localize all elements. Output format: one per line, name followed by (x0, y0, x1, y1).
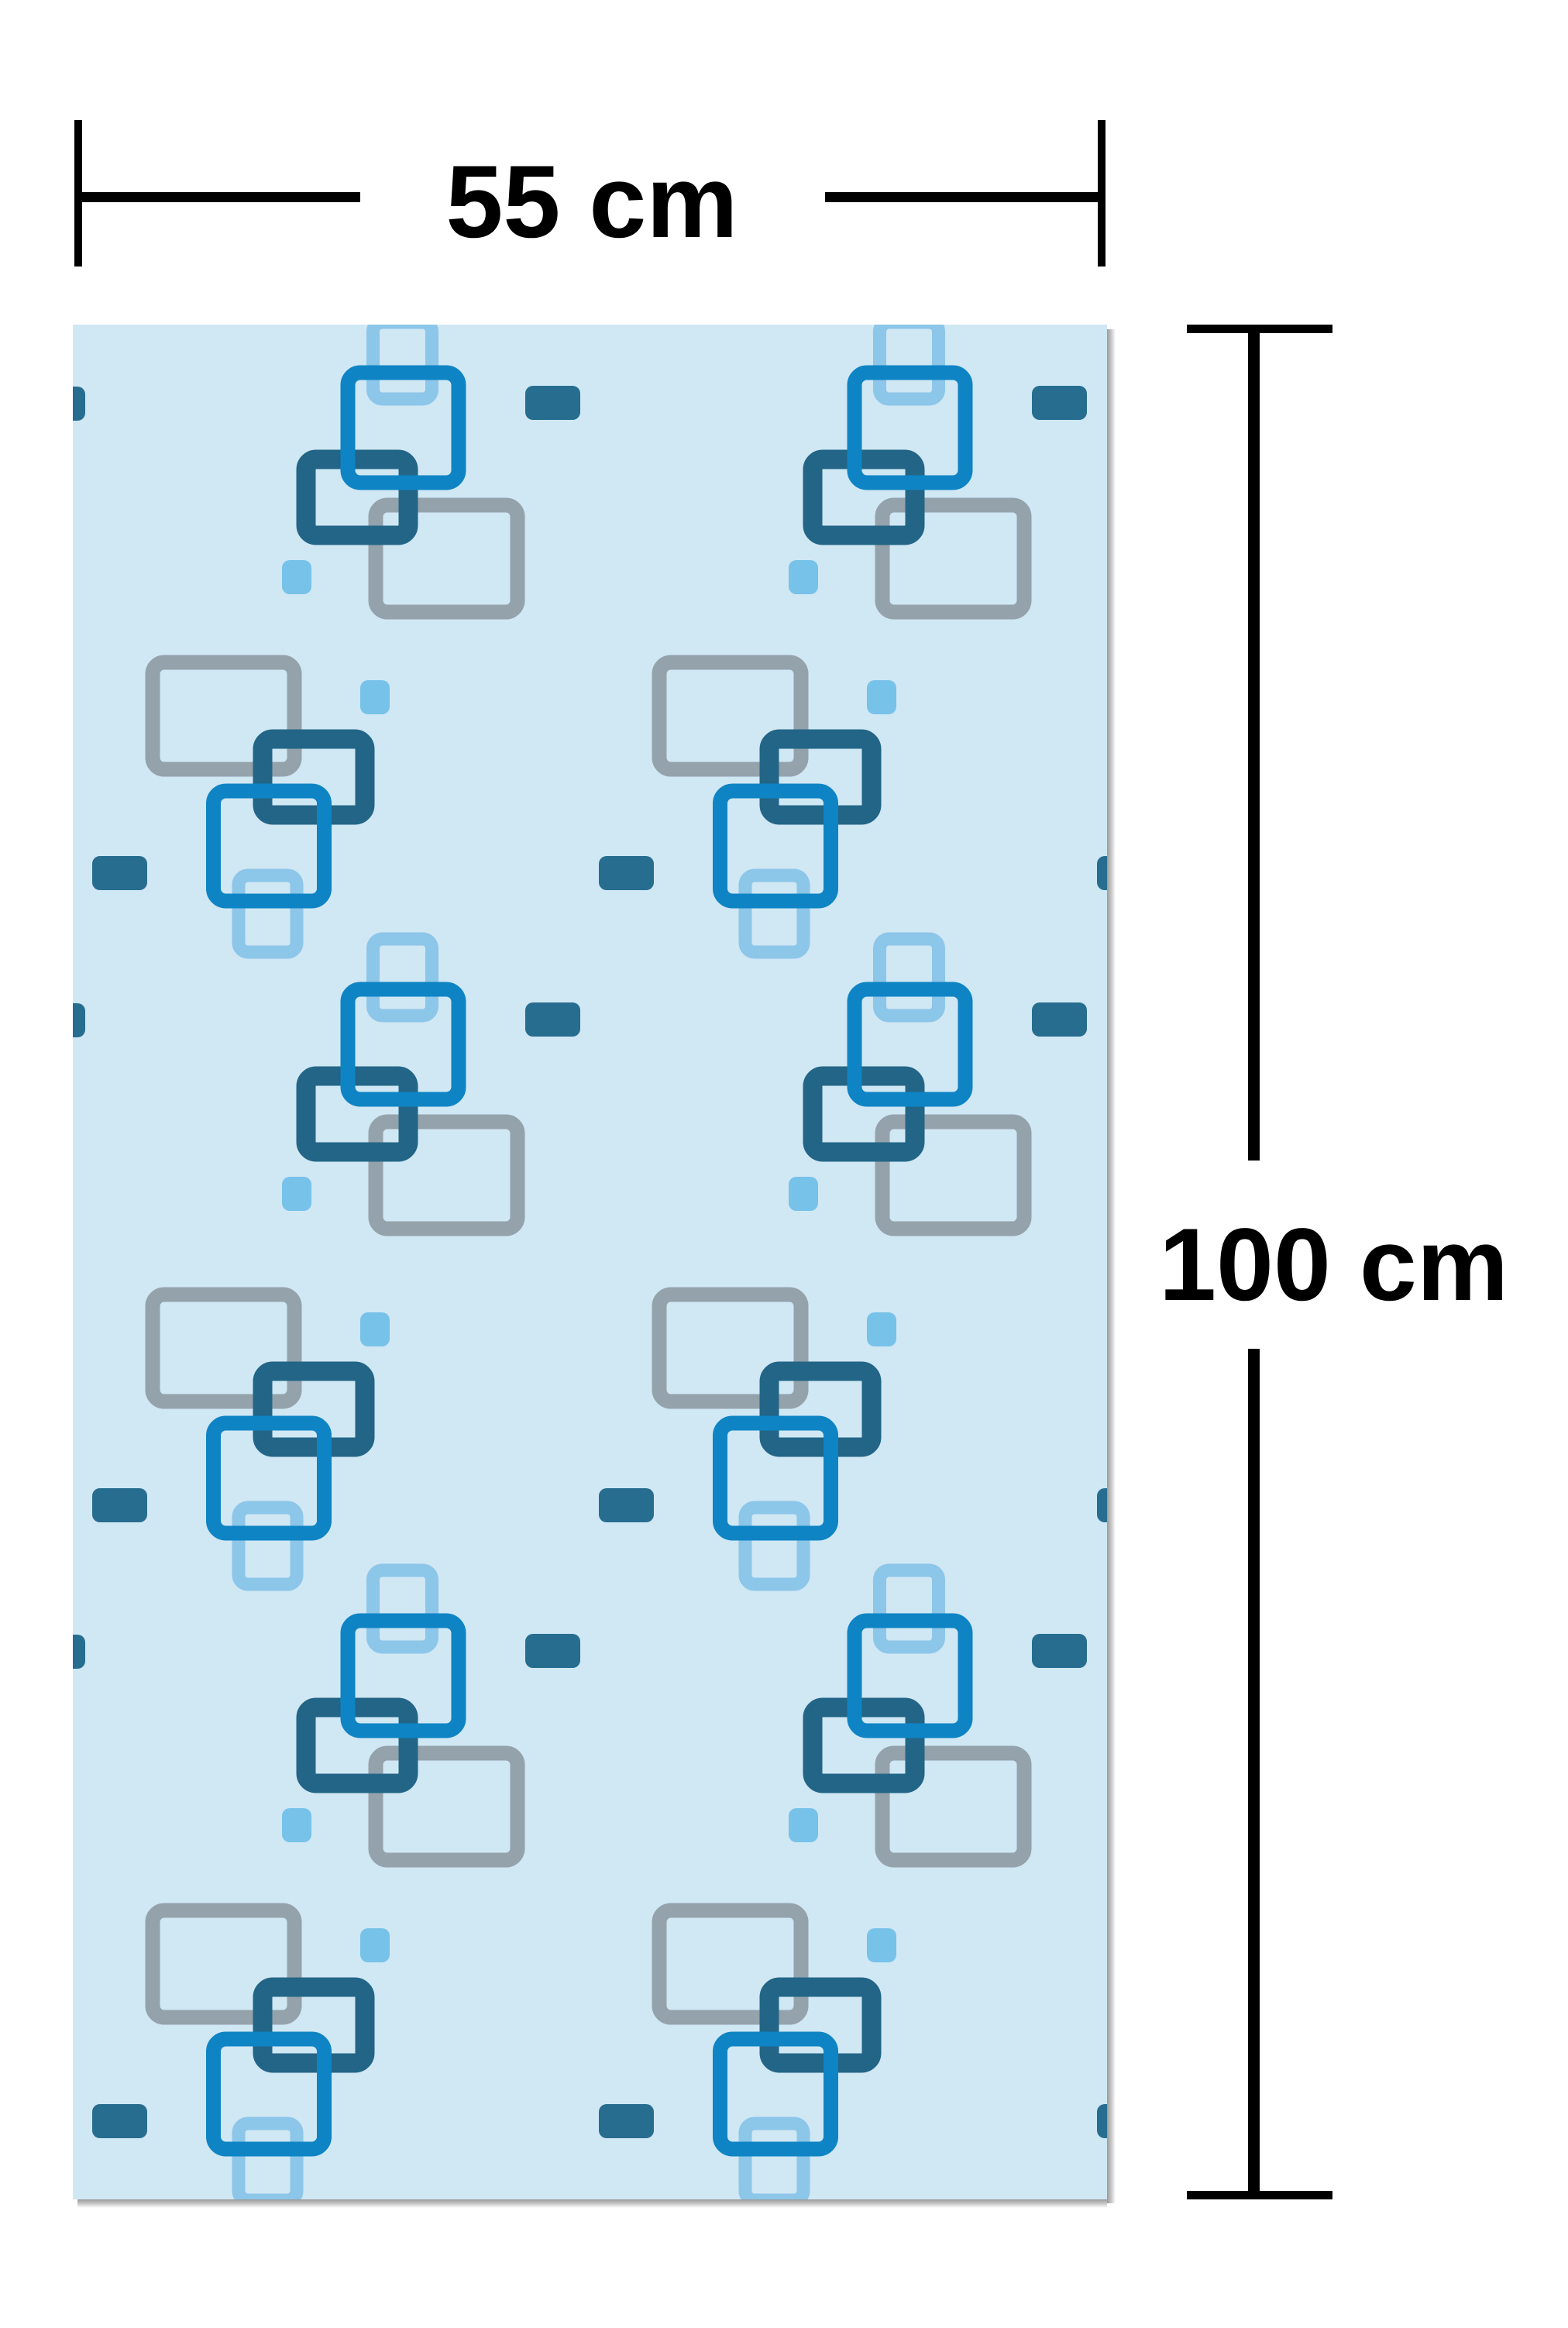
svg-text:55 cm: 55 cm (445, 145, 738, 260)
svg-text:100 cm: 100 cm (1159, 1208, 1508, 1322)
